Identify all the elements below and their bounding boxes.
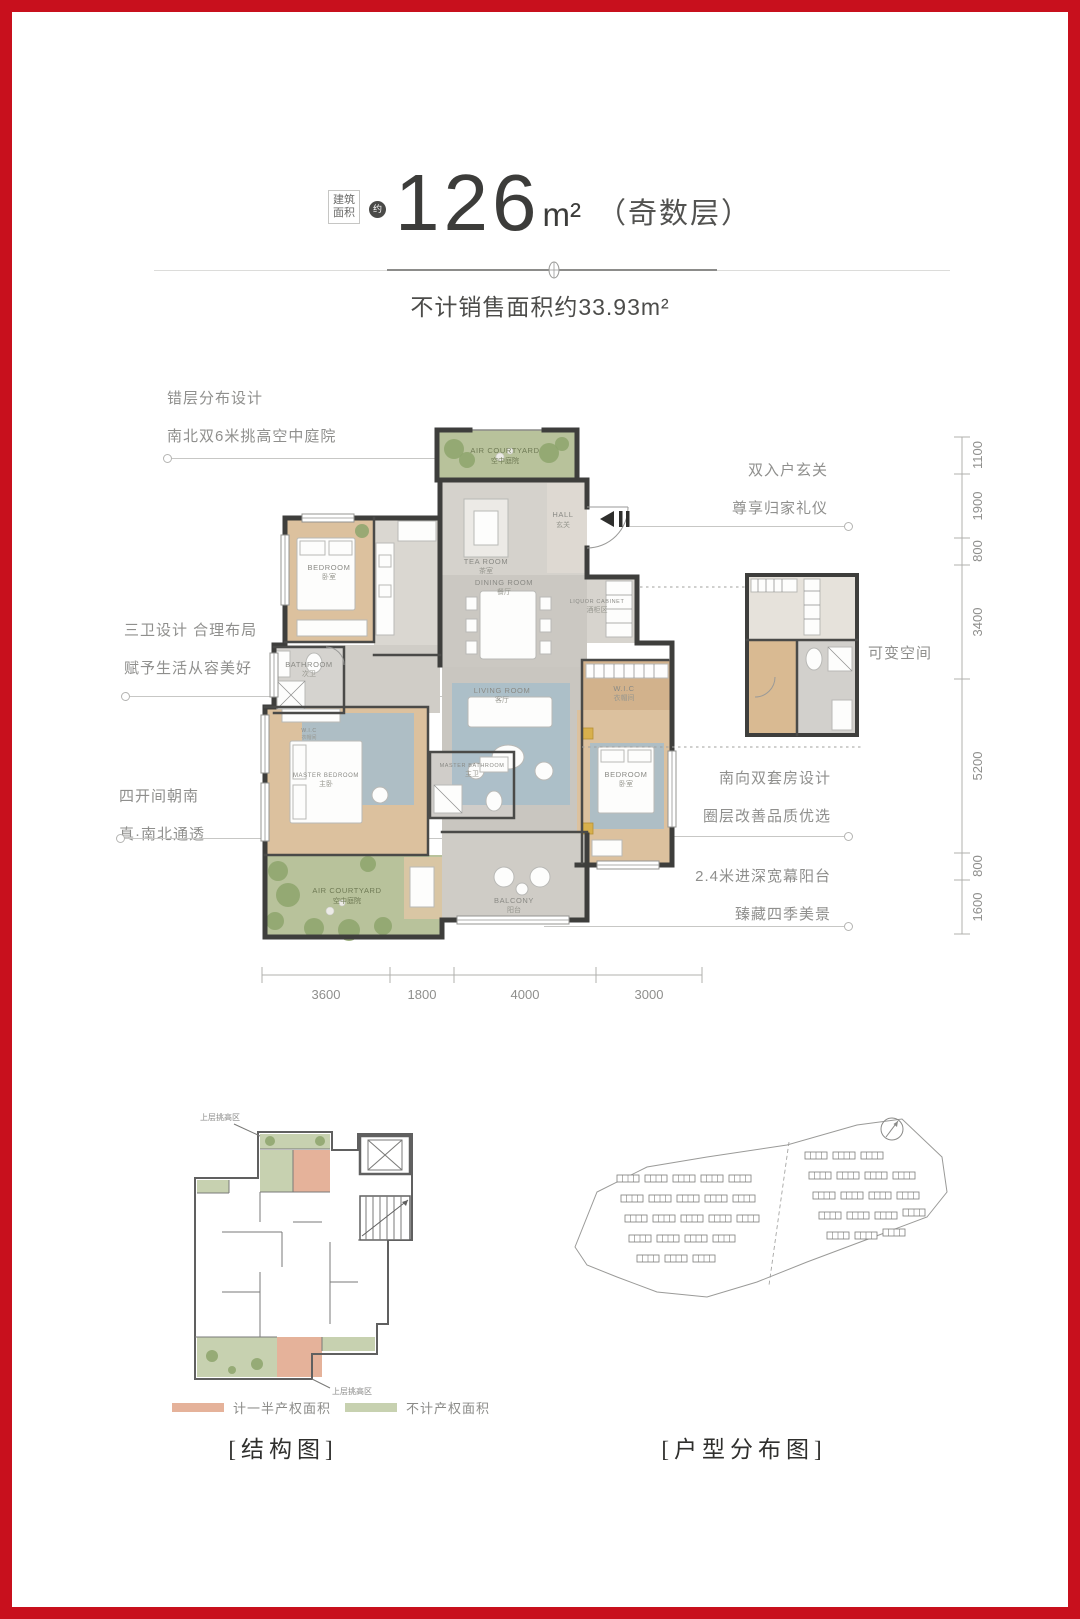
svg-text:餐厅: 餐厅 [497, 587, 511, 596]
svg-text:BALCONY: BALCONY [494, 896, 534, 905]
svg-text:3400: 3400 [970, 608, 985, 637]
area-value: 126 [395, 168, 540, 238]
svg-text:卧室: 卧室 [619, 779, 633, 788]
area-label-line1: 建筑 [333, 194, 355, 207]
approx-badge: 约 [369, 201, 386, 218]
site-divider [769, 1142, 789, 1285]
dimension-chain-bottom: 3600 1800 4000 3000 [252, 957, 722, 1007]
svg-text:次卫: 次卫 [302, 669, 316, 678]
svg-text:800: 800 [970, 855, 985, 877]
entry-arrow-icon [600, 511, 630, 527]
area-label-box: 建筑 面积 [328, 190, 360, 224]
svg-text:客厅: 客厅 [495, 695, 509, 704]
svg-text:主卫: 主卫 [465, 769, 479, 778]
svg-text:上层挑高区: 上层挑高区 [200, 1112, 240, 1122]
svg-text:W.I.C: W.I.C [301, 728, 316, 734]
svg-text:卧室: 卧室 [322, 572, 336, 581]
svg-text:主卧: 主卧 [319, 779, 333, 788]
dimension-chain-right: 1100 1900 800 3400 5200 800 1600 [942, 415, 1012, 950]
main-floorplan: AIR COURTYARD 空中庭院 HALL 玄关 TEA ROOM 茶室 D… [252, 415, 882, 950]
annotation-south-line2: 真·南北通透 [119, 816, 205, 854]
title-row: 建筑 面积 约 126 m² （奇数层） [12, 168, 1068, 238]
legend: 计一半产权面积 不计产权面积 [172, 1398, 490, 1417]
svg-text:BEDROOM: BEDROOM [605, 770, 648, 779]
floor-note: （奇数层） [597, 190, 752, 232]
svg-text:DINING ROOM: DINING ROOM [475, 578, 533, 587]
svg-text:1100: 1100 [970, 441, 985, 469]
svg-text:茶室: 茶室 [479, 566, 493, 575]
svg-text:衣帽间: 衣帽间 [614, 693, 635, 702]
svg-text:1600: 1600 [970, 893, 985, 922]
legend-label-no-title-area: 不计产权面积 [406, 1398, 490, 1417]
caption-distribution: [户型分布图] [644, 1430, 844, 1464]
annotation-bathrooms-line2: 赋予生活从容美好 [124, 650, 257, 688]
legend-swatch-green [345, 1403, 397, 1412]
divider-ornament-icon [544, 261, 564, 279]
area-unit: m² [542, 196, 580, 234]
annotation-bathrooms: 三卫设计 合理布局 赋予生活从容美好 [124, 612, 257, 688]
svg-text:酒柜区: 酒柜区 [587, 605, 608, 614]
structure-elevator [360, 1136, 410, 1174]
structure-shading [197, 1134, 375, 1377]
structure-stairs [360, 1196, 410, 1240]
caption-structure: [结构图] [183, 1430, 383, 1464]
divider [154, 270, 950, 271]
svg-text:AIR COURTYARD: AIR COURTYARD [470, 446, 539, 455]
site-boundary [575, 1119, 947, 1297]
annotation-stagger-line1: 错层分布设计 [167, 380, 336, 418]
annotation-south-line1: 四开间朝南 [119, 778, 205, 816]
legend-label-half-title-area: 计一半产权面积 [233, 1398, 331, 1417]
svg-text:空中庭院: 空中庭院 [333, 896, 361, 905]
north-arrow-icon [881, 1118, 903, 1140]
legend-item-half-title-area: 计一半产权面积 [172, 1398, 331, 1417]
svg-text:1900: 1900 [970, 492, 985, 521]
svg-text:MASTER BEDROOM: MASTER BEDROOM [293, 773, 359, 779]
area-label-line2: 面积 [333, 207, 355, 220]
svg-text:3600: 3600 [312, 987, 341, 1002]
svg-text:BEDROOM: BEDROOM [308, 563, 351, 572]
svg-text:800: 800 [970, 540, 985, 562]
annotation-bathrooms-line1: 三卫设计 合理布局 [124, 612, 257, 650]
legend-item-no-title-area: 不计产权面积 [345, 1398, 490, 1417]
svg-text:W.I.C: W.I.C [613, 684, 634, 693]
svg-text:LIVING ROOM: LIVING ROOM [474, 686, 531, 695]
site-buildings [617, 1152, 925, 1262]
svg-text:TEA ROOM: TEA ROOM [464, 557, 508, 566]
svg-text:上层挑高区: 上层挑高区 [332, 1386, 372, 1396]
svg-text:3000: 3000 [635, 987, 664, 1002]
svg-text:玄关: 玄关 [556, 520, 570, 529]
svg-text:衣帽间: 衣帽间 [301, 734, 316, 741]
svg-text:1800: 1800 [408, 987, 437, 1002]
svg-text:AIR COURTYARD: AIR COURTYARD [312, 886, 381, 895]
svg-text:BATHROOM: BATHROOM [285, 660, 333, 669]
structure-diagram: 上层挑高区 上层挑高区 [162, 1092, 452, 1397]
site-plan [557, 1097, 957, 1347]
svg-text:4000: 4000 [511, 987, 540, 1002]
subtitle: 不计销售面积约33.93m² [12, 288, 1068, 322]
legend-swatch-salmon [172, 1403, 224, 1412]
annotation-south: 四开间朝南 真·南北通透 [119, 778, 205, 854]
svg-text:空中庭院: 空中庭院 [491, 456, 519, 465]
svg-text:阳台: 阳台 [507, 905, 521, 914]
svg-text:MASTER BATHROOM: MASTER BATHROOM [440, 763, 505, 769]
floorplan-flyer-page: 建筑 面积 约 126 m² （奇数层） 不计销售面积约33.93m² 错层分布… [0, 0, 1080, 1619]
svg-text:LIQUOR CABINET: LIQUOR CABINET [570, 599, 625, 605]
svg-text:HALL: HALL [552, 510, 573, 519]
svg-text:5200: 5200 [970, 752, 985, 781]
